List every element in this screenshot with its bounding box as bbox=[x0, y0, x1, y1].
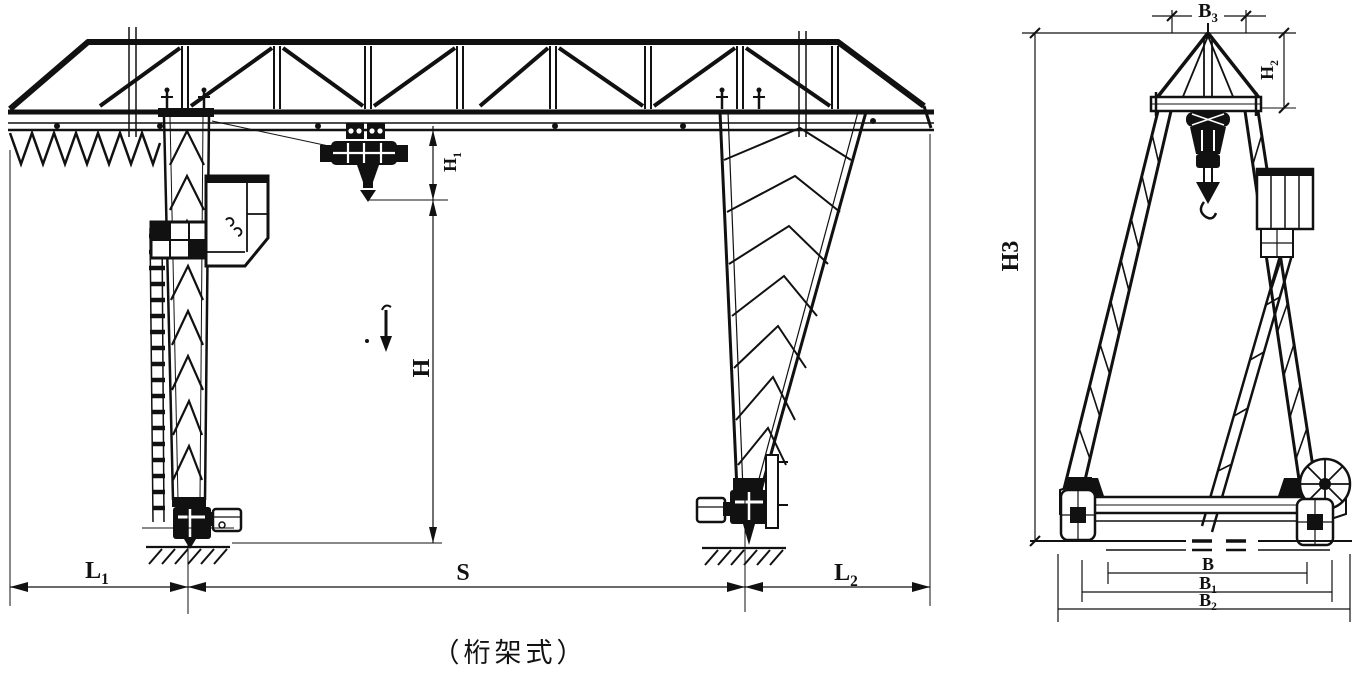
side-elevation-view: H3 B3 H2 bbox=[998, 0, 1352, 622]
drawing-canvas: H1 H bbox=[0, 0, 1355, 673]
dim-label-s: S bbox=[456, 560, 469, 586]
figure-caption: （桁架式） bbox=[433, 638, 588, 669]
dim-label-l1: L1 bbox=[85, 558, 109, 588]
cantilever-sawtooth bbox=[10, 133, 160, 164]
right-leg-lattice bbox=[724, 128, 851, 465]
gantry-crane-technical-drawing: H1 H bbox=[0, 0, 1355, 673]
left-leg-bogie bbox=[142, 497, 241, 549]
right-leg bbox=[697, 112, 866, 612]
left-leg-lattice bbox=[170, 131, 204, 480]
a-frame-left-leg bbox=[1063, 111, 1171, 493]
dim-b-group: B B1 B2 bbox=[1058, 554, 1350, 622]
truss-verticals bbox=[182, 46, 838, 109]
operator-cab-front bbox=[206, 176, 268, 266]
dim-label-b: B bbox=[1202, 554, 1214, 574]
travel-wheel-left bbox=[1061, 477, 1095, 540]
travel-wheel-right bbox=[1297, 499, 1333, 545]
a-frame-diagonal-brace bbox=[1202, 249, 1292, 532]
bridge-girder-truss bbox=[8, 27, 934, 164]
hook-block bbox=[357, 165, 379, 202]
end-carriage bbox=[1030, 459, 1352, 550]
dim-label-l2: L2 bbox=[834, 560, 858, 590]
a-frame bbox=[1063, 23, 1317, 532]
dim-span: L1 S L2 bbox=[10, 134, 930, 606]
dim-label-h: H bbox=[409, 358, 435, 377]
dim-label-h3: H3 bbox=[998, 241, 1024, 272]
hook-curl bbox=[1201, 202, 1216, 218]
front-elevation-view: H1 H bbox=[8, 27, 934, 614]
dim-label-h2: H2 bbox=[1257, 60, 1281, 80]
hook-pictogram bbox=[365, 306, 392, 352]
left-leg-ladder bbox=[149, 228, 165, 522]
left-leg-platform-box bbox=[151, 222, 207, 258]
operator-cab-side bbox=[1257, 169, 1313, 257]
hoist-side bbox=[1186, 112, 1230, 218]
dim-label-h1: H1 bbox=[440, 152, 464, 172]
